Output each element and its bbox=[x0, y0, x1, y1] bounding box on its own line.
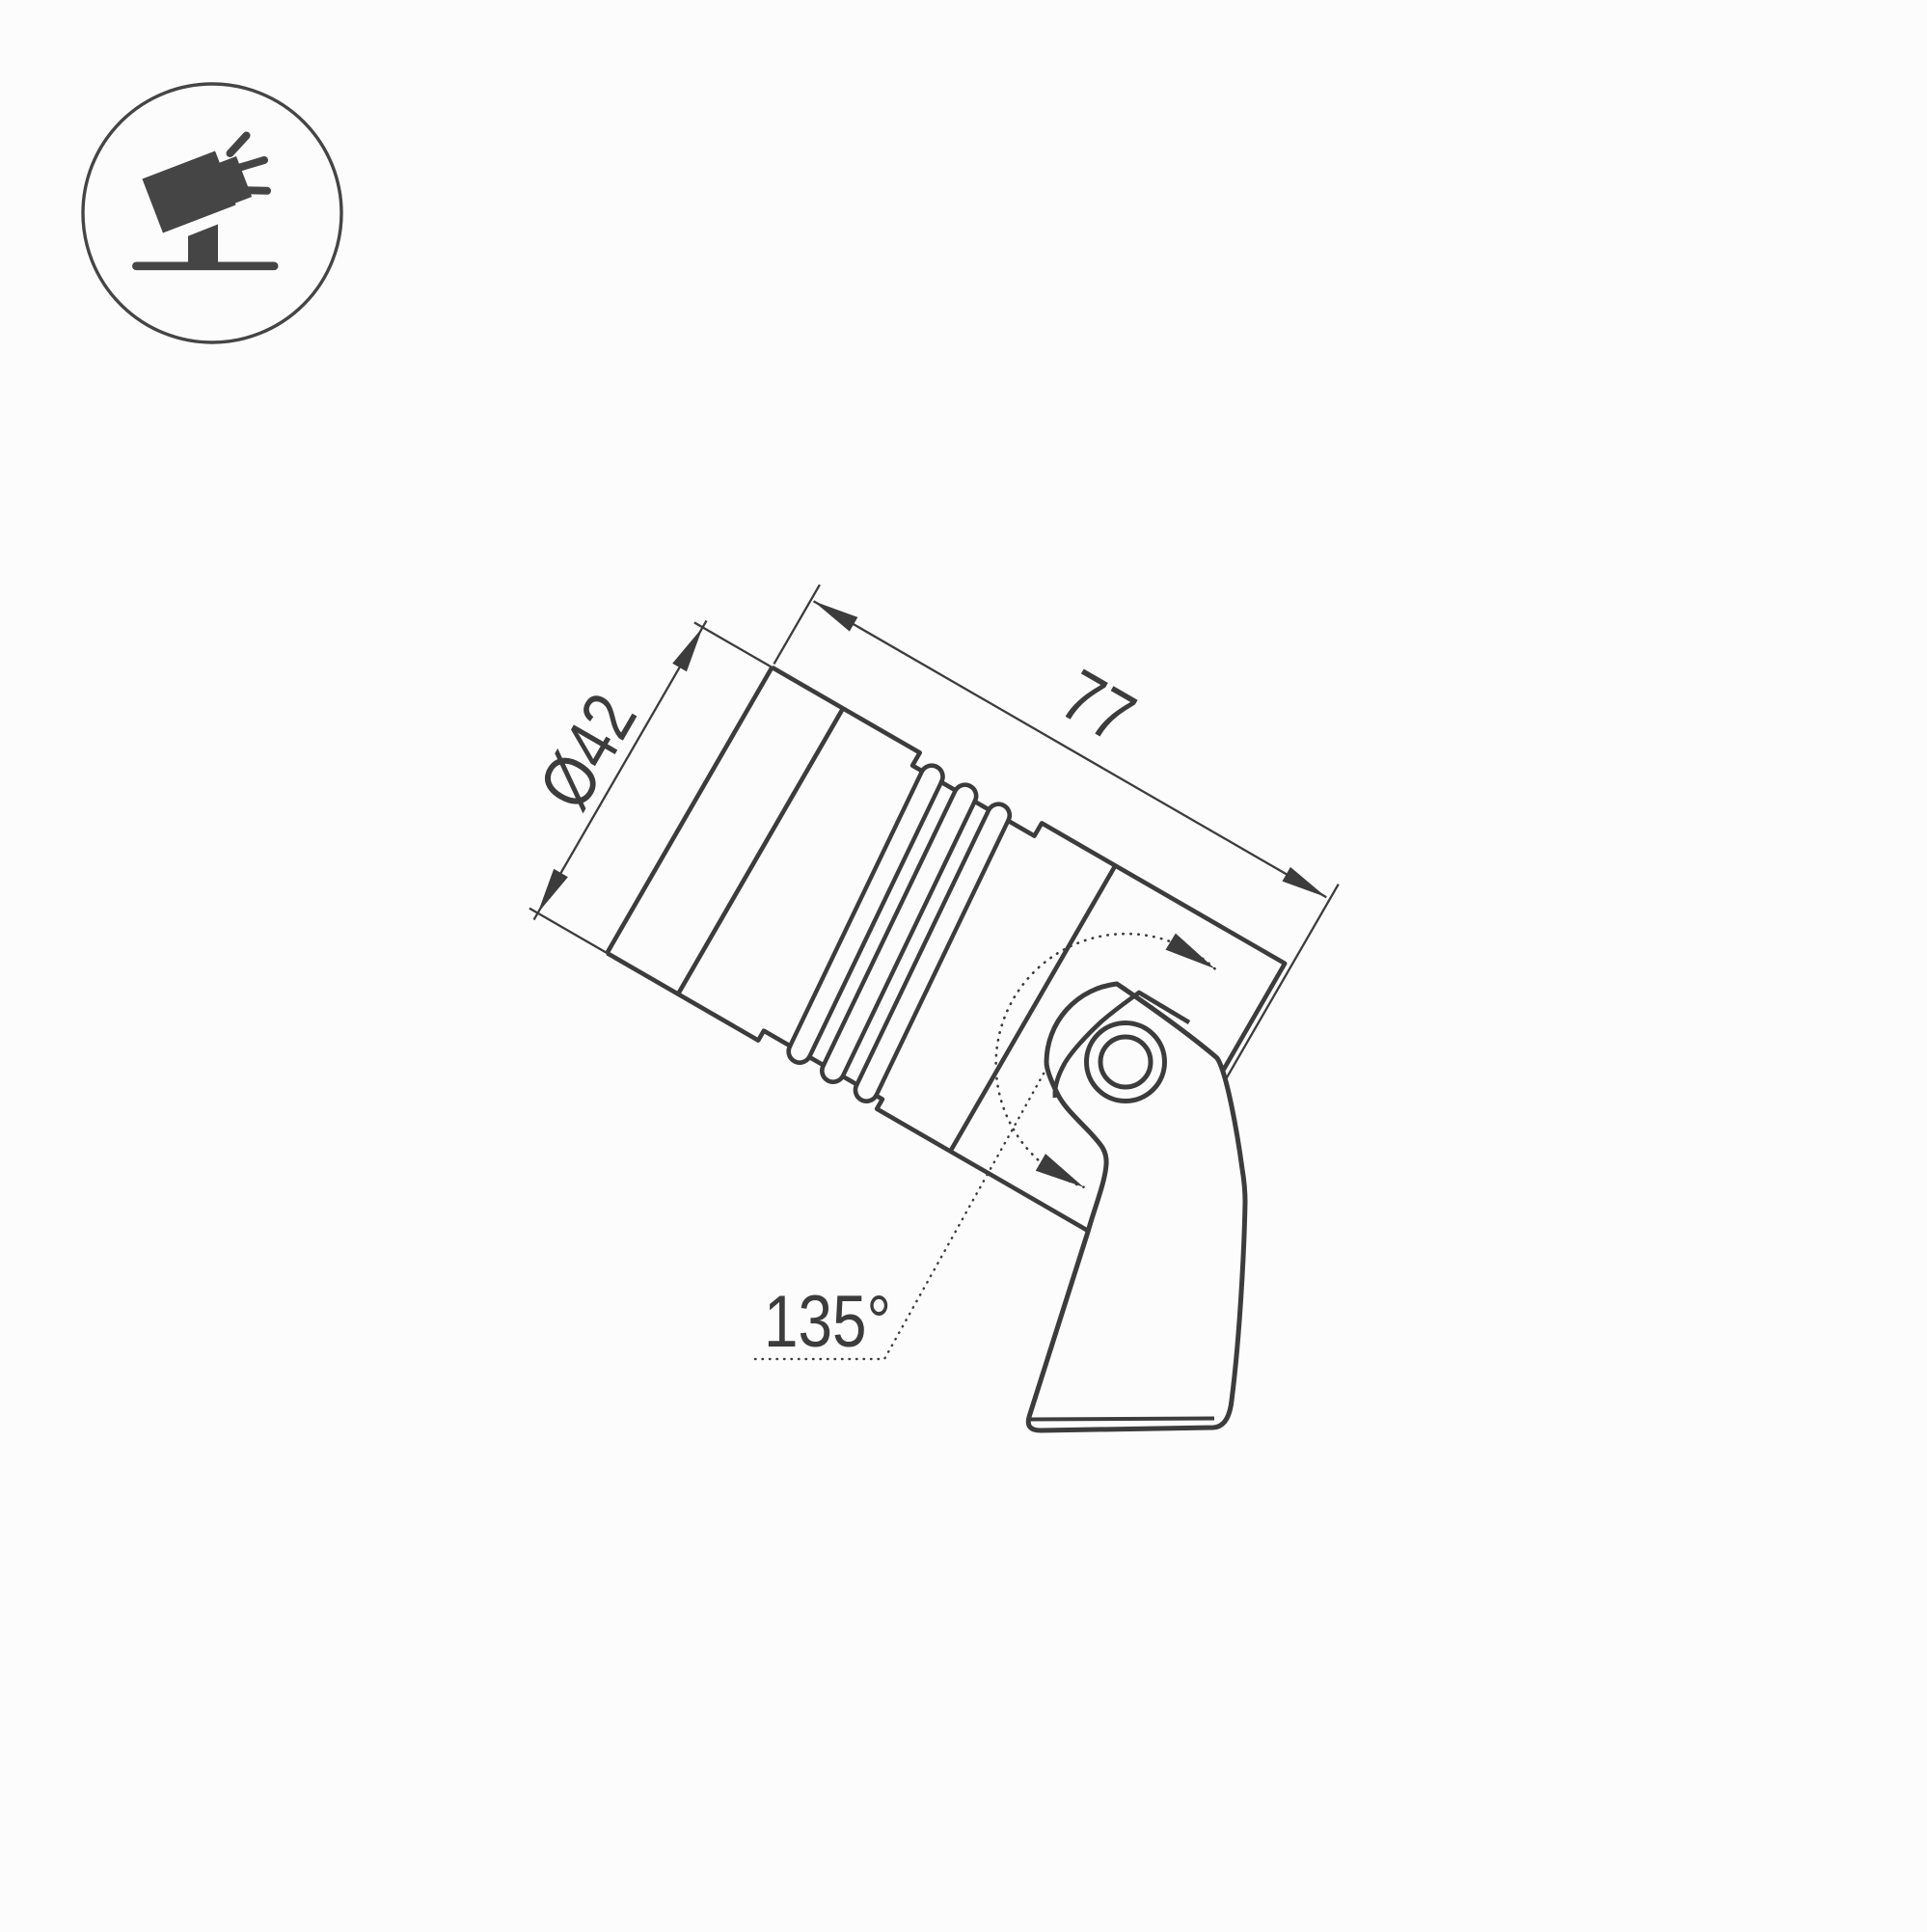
svg-text:135°: 135° bbox=[764, 1280, 891, 1363]
